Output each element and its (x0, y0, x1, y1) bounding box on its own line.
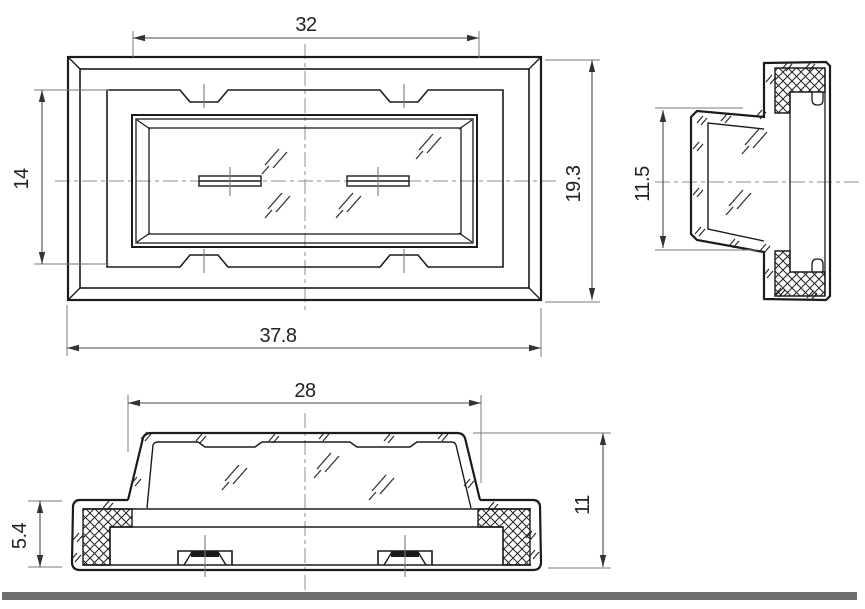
dim-32: 32 (133, 14, 479, 58)
dim-11-5-label: 11.5 (632, 166, 654, 202)
bottom-section-view (71, 413, 541, 590)
front-centerlines (55, 44, 558, 312)
dim-37-8-label: 37.8 (260, 325, 297, 347)
front-feature-ticks (204, 84, 404, 273)
technical-drawing-page: 32 14 37.8 19.3 11.5 28 5.4 (0, 0, 865, 609)
bottom-flange-outline (72, 500, 541, 570)
side-outline (691, 62, 830, 300)
bottom-inner-lines (83, 509, 531, 565)
side-glass-marks (726, 129, 767, 215)
dim-5-4: 5.4 (9, 501, 62, 567)
dim-37-8: 37.8 (67, 305, 541, 357)
bottom-glass-marks (222, 453, 394, 500)
dim-19-3-label: 19.3 (563, 165, 585, 202)
bottom-dome-inner (147, 442, 471, 508)
dim-32-label: 32 (295, 14, 317, 36)
side-texture-marks (693, 62, 817, 300)
dim-28-label: 28 (294, 380, 316, 402)
side-section-view (655, 62, 860, 300)
front-view (55, 44, 558, 312)
bottom-hatch-sections (83, 509, 530, 565)
dim-5-4-label: 5.4 (9, 522, 31, 549)
dim-14: 14 (11, 90, 109, 264)
bottom-dome-outline (128, 433, 480, 500)
dim-11-label: 11 (572, 495, 594, 515)
dim-11-5: 11.5 (632, 108, 758, 250)
footer-bar (2, 592, 857, 600)
drawing-canvas: 32 14 37.8 19.3 11.5 28 5.4 (0, 0, 865, 609)
dim-14-label: 14 (11, 168, 33, 190)
